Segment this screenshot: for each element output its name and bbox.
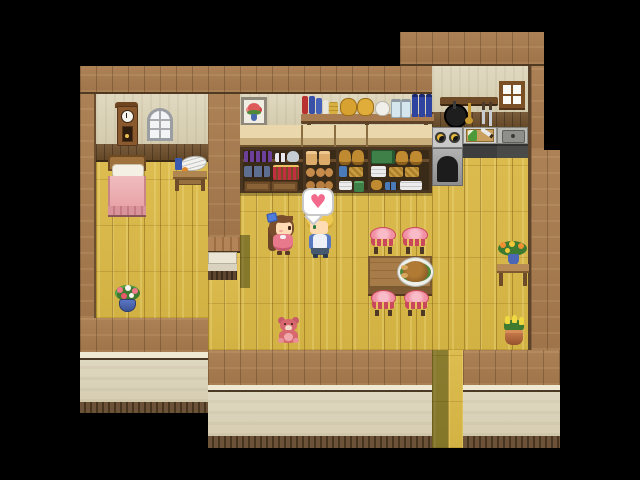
bread-loaf	[306, 151, 317, 165]
stool-leg	[388, 247, 392, 254]
green-tin	[354, 181, 364, 192]
room-step[interactable]	[208, 252, 237, 280]
clay-pot	[505, 330, 523, 345]
flower-picture[interactable]	[241, 97, 267, 126]
side-table-leg	[499, 273, 503, 286]
stove[interactable]	[432, 127, 463, 186]
wall-bottom-left-ledge	[80, 352, 208, 360]
flower-blossom	[125, 285, 131, 291]
step-base	[208, 271, 237, 280]
window-mullions	[150, 111, 170, 138]
girl-foot	[277, 251, 282, 255]
wall-bottom-left-top	[80, 318, 208, 352]
wall-bottom-mid-baseboard	[208, 436, 432, 448]
book-blue	[309, 96, 315, 114]
bed-blanket	[108, 176, 146, 206]
stool-rim	[403, 239, 427, 246]
blue-pots	[244, 166, 270, 177]
frying-pan-icon	[444, 104, 468, 128]
bun	[325, 168, 333, 177]
side-table[interactable]	[497, 241, 529, 287]
wall-bottom-mid-ledge	[208, 385, 432, 392]
blue-cups	[385, 182, 397, 190]
brass-pot	[339, 150, 351, 165]
flower-pot-blue[interactable]	[115, 285, 140, 314]
wall-top-band	[80, 66, 432, 94]
teddy-belly	[284, 333, 293, 341]
red-bottle-rack	[273, 165, 299, 180]
wall-bottom-left-face	[80, 360, 208, 402]
cabinet-counter	[240, 125, 432, 147]
stool-leg	[374, 247, 378, 254]
wall-right-upper	[528, 66, 544, 150]
divider-shadow	[240, 235, 250, 288]
tulip-bloom	[512, 315, 517, 323]
towels	[371, 166, 386, 177]
pot-blue	[119, 299, 136, 312]
knife-icon	[482, 102, 485, 124]
book-red	[302, 96, 308, 114]
speech-bubble: ♥	[302, 188, 334, 216]
stool-leg	[406, 247, 410, 254]
washstand-top	[173, 171, 207, 179]
goblets-purple	[244, 151, 272, 162]
book-blue	[316, 98, 322, 114]
picture-vase	[251, 114, 257, 121]
tulip-bloom	[505, 316, 510, 324]
square-window	[499, 81, 525, 108]
shop-cabinets[interactable]	[240, 125, 432, 193]
knife-icon	[489, 102, 492, 126]
wall-raised-block	[400, 32, 544, 66]
sink-front	[497, 144, 528, 158]
stool[interactable]	[371, 290, 396, 316]
teddy-paw	[293, 338, 299, 343]
flower-blossom	[505, 248, 510, 253]
wall-bottom-mid-face	[208, 392, 432, 436]
stool-leg	[420, 247, 424, 254]
bun	[316, 168, 325, 177]
washstand-leg	[175, 179, 179, 191]
glass-jar	[401, 99, 411, 118]
teddy-eye	[291, 323, 293, 325]
teapot	[375, 101, 390, 116]
wall-bottom-left-baseboard	[80, 402, 208, 413]
pendulum	[125, 134, 129, 138]
basket	[405, 167, 419, 177]
girl-blush	[279, 230, 283, 232]
teddy-bear[interactable]	[277, 317, 300, 344]
roast-bird	[403, 261, 428, 282]
stove-oven-mouth	[437, 156, 458, 182]
wall-shelf[interactable]	[301, 94, 434, 128]
grandfather-clock[interactable]	[117, 102, 136, 144]
washstand-drawer	[177, 179, 203, 185]
washstand-cloth	[175, 158, 182, 170]
side-table-top	[497, 264, 529, 273]
flower-blossom	[518, 243, 524, 249]
step-top	[208, 252, 237, 264]
game-viewport: ♥	[0, 0, 640, 480]
stool-rim	[371, 239, 395, 246]
basket	[389, 167, 403, 177]
wall-left	[80, 94, 96, 318]
brass-pot	[371, 180, 382, 190]
towels	[400, 181, 422, 190]
clock-hand	[126, 113, 127, 118]
blue-jar	[339, 166, 347, 177]
side-table-leg	[523, 273, 527, 286]
book-white	[323, 100, 328, 114]
wall-divider-face	[208, 237, 240, 253]
character-girl[interactable]	[267, 211, 297, 257]
wall-bottom-right-face	[463, 392, 560, 436]
utensil-rack[interactable]	[440, 95, 498, 131]
stool-rim	[372, 302, 395, 309]
step-mid	[208, 264, 237, 271]
counter-seam	[334, 125, 336, 147]
salt-shakers	[275, 153, 286, 162]
window-cross	[503, 85, 521, 104]
bun	[306, 168, 315, 177]
drumstick	[401, 273, 408, 278]
villager-foot	[313, 254, 318, 258]
brass-pot	[410, 151, 422, 165]
tulip-bloom	[519, 317, 524, 325]
girl-eye	[288, 226, 291, 230]
counter-seam	[301, 125, 303, 147]
coin-sack	[340, 98, 357, 116]
glass-jar	[391, 99, 401, 118]
teddy-eye	[284, 323, 286, 325]
stool-leg	[421, 310, 425, 316]
bread-loaf	[319, 151, 330, 165]
girl-foot	[285, 251, 290, 255]
drawer	[271, 181, 298, 192]
blue-bottle	[412, 94, 418, 117]
counter-seam	[366, 125, 368, 147]
kitchen-counter[interactable]	[463, 127, 497, 158]
arched-window	[147, 108, 173, 141]
wall-bottom-right-top	[463, 350, 560, 385]
passage-shadow	[432, 350, 448, 448]
washstand[interactable]	[173, 156, 207, 192]
drawer	[244, 181, 271, 192]
stool[interactable]	[370, 227, 396, 254]
wall-right-lower	[528, 150, 560, 350]
brass-pot	[396, 151, 408, 165]
books-stacked	[329, 102, 338, 114]
wall-bottom-right-ledge	[463, 385, 560, 392]
tulip-pot[interactable]	[503, 316, 525, 347]
stool-rim	[405, 302, 428, 309]
flower-blossom	[117, 287, 123, 293]
stool[interactable]	[402, 227, 428, 254]
coin-sack	[357, 98, 374, 116]
girl-collar	[280, 235, 286, 239]
counter-front	[463, 144, 497, 158]
stool-leg	[408, 310, 412, 316]
towels	[339, 181, 352, 190]
heart-icon: ♥	[309, 191, 326, 213]
villager-foot	[323, 254, 328, 258]
leek	[468, 130, 477, 141]
sink[interactable]	[497, 127, 528, 158]
wall-bottom-right-baseboard	[463, 436, 560, 448]
stove-burner	[449, 132, 460, 143]
drumstick	[401, 265, 408, 270]
kettle-silver	[287, 151, 299, 162]
stool-leg	[388, 310, 392, 316]
blue-bottle	[419, 94, 425, 117]
brass-pot	[352, 150, 364, 165]
basket	[349, 167, 363, 177]
stool-leg	[375, 310, 379, 316]
sink-drain	[511, 134, 515, 138]
washstand-leg	[201, 179, 205, 191]
turkey-platter[interactable]	[397, 257, 434, 287]
teddy-paw	[278, 338, 284, 343]
blue-bottle	[426, 94, 432, 117]
bed[interactable]	[108, 155, 146, 219]
wall-divider	[208, 94, 240, 237]
stool[interactable]	[404, 290, 429, 316]
green-crates	[371, 150, 395, 164]
flower-blossom	[509, 241, 515, 247]
wall-bottom-mid-top	[208, 350, 432, 385]
flower-blossom	[500, 242, 506, 248]
flower-blossom	[129, 293, 134, 298]
bed-ruffle	[108, 206, 146, 217]
clock-face	[121, 110, 134, 123]
ladle-bowl	[465, 117, 473, 124]
pan-handle	[453, 101, 456, 109]
stove-burner	[435, 132, 446, 143]
